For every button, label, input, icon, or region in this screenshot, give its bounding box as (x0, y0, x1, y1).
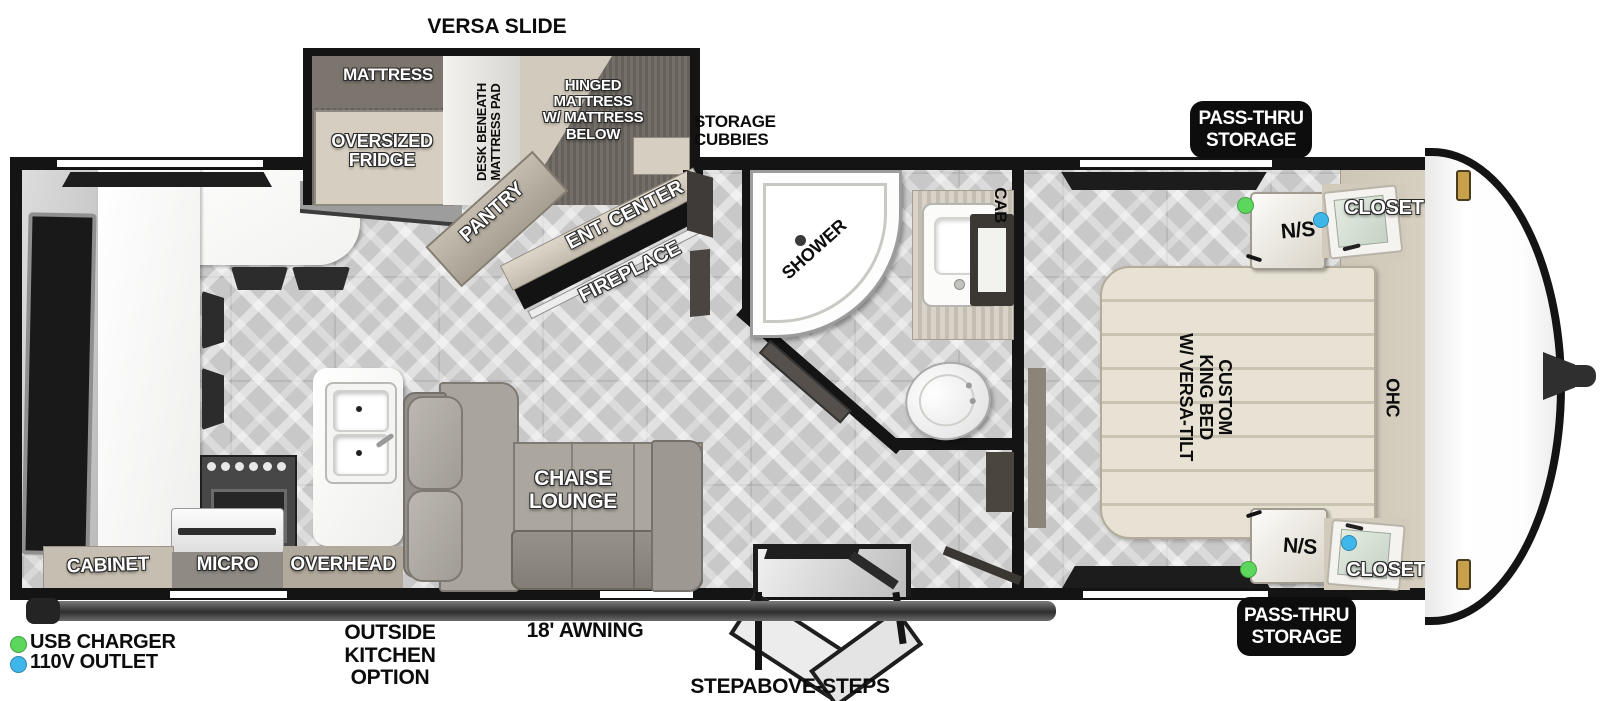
kitchen-counter-left (98, 168, 200, 548)
legend-outlet-dot (10, 656, 27, 673)
outside-kitchen-label: OUTSIDE KITCHEN OPTION (330, 622, 450, 690)
microwave (171, 508, 284, 554)
pass-thru-storage-top-badge: PASS-THRU STORAGE (1190, 101, 1312, 158)
oversized-fridge-label: OVERSIZED FRIDGE (316, 132, 448, 171)
rear-wall-window (21, 212, 96, 555)
closet-bottom-label: CLOSET (1338, 560, 1434, 582)
marker-light (1456, 170, 1471, 201)
bar-stool (231, 267, 288, 290)
chaise-lounge-label: CHAISE LOUNGE (508, 468, 638, 513)
closet-top (1322, 184, 1406, 258)
bar-stool (202, 291, 224, 349)
floorplan: CABINET MICRO OVERHEAD MATTRESS OVERSIZE… (0, 0, 1600, 701)
bath-wall-bottom (893, 438, 1024, 450)
chair-cushion (407, 490, 463, 582)
wall-top-right (693, 157, 1433, 170)
bedroom-door-jamb (1028, 368, 1046, 528)
window-stripe (57, 160, 263, 167)
awning-label: 18' AWNING (515, 620, 655, 643)
kitchen-sink (325, 382, 397, 484)
pass-thru-storage-bottom-badge: PASS-THRU STORAGE (1237, 597, 1356, 656)
window-stripe (1083, 591, 1268, 598)
hitch-coupler (1568, 365, 1596, 387)
king-bed-label: CUSTOM KING BED W/ VERSA-TILT (1176, 302, 1234, 492)
bar-stool (292, 267, 350, 290)
king-bed (1100, 266, 1376, 539)
cabinet-label: CABINET (48, 554, 169, 579)
stepabove-steps-label: STEPABOVE-STEPS (680, 676, 900, 699)
kitchen-window-top (62, 172, 272, 187)
window-stripe (170, 591, 287, 598)
entry-steps-inside (753, 544, 911, 597)
versa-slide-label: VERSA SLIDE (382, 16, 612, 39)
storage-cubbies-label: STORAGE CUBBIES (694, 113, 786, 150)
hinged-mattress-label: HINGED MATTRESS W/ MATTRESS BELOW (534, 78, 652, 143)
storage-cubbies-unit (690, 249, 710, 317)
bedroom-door-panel (986, 452, 1014, 512)
bedroom-window-top (1057, 172, 1271, 190)
overhead-label: OVERHEAD (280, 555, 406, 576)
closet-top-label: CLOSET (1336, 198, 1432, 220)
cab-label: CAB (991, 175, 1009, 235)
window-stripe (1080, 160, 1272, 167)
awning-bar (34, 601, 1056, 621)
storage-cubbies-unit (687, 170, 713, 237)
window-stripe (600, 591, 693, 598)
mattress-label: MATTRESS (326, 66, 450, 84)
usb-dot-bed-bottom (1240, 561, 1257, 578)
bar-stool (202, 368, 224, 430)
chair-cushion (407, 396, 463, 490)
ohc-label: OHC (1382, 368, 1401, 428)
ns-bottom-label: N/S (1273, 534, 1326, 560)
legend-outlet-label: 110V OUTLET (30, 652, 190, 674)
usb-dot-bed-top (1237, 197, 1254, 214)
legend-usb-dot (10, 636, 27, 653)
micro-label: MICRO (175, 555, 280, 576)
outlet-dot-bed-bottom (1341, 535, 1357, 551)
awning-end-cap (26, 598, 60, 624)
marker-light (1456, 559, 1471, 590)
outlet-dot-bed-top (1313, 212, 1329, 228)
sofa-right-arm (651, 440, 703, 592)
wall-left (10, 157, 22, 600)
